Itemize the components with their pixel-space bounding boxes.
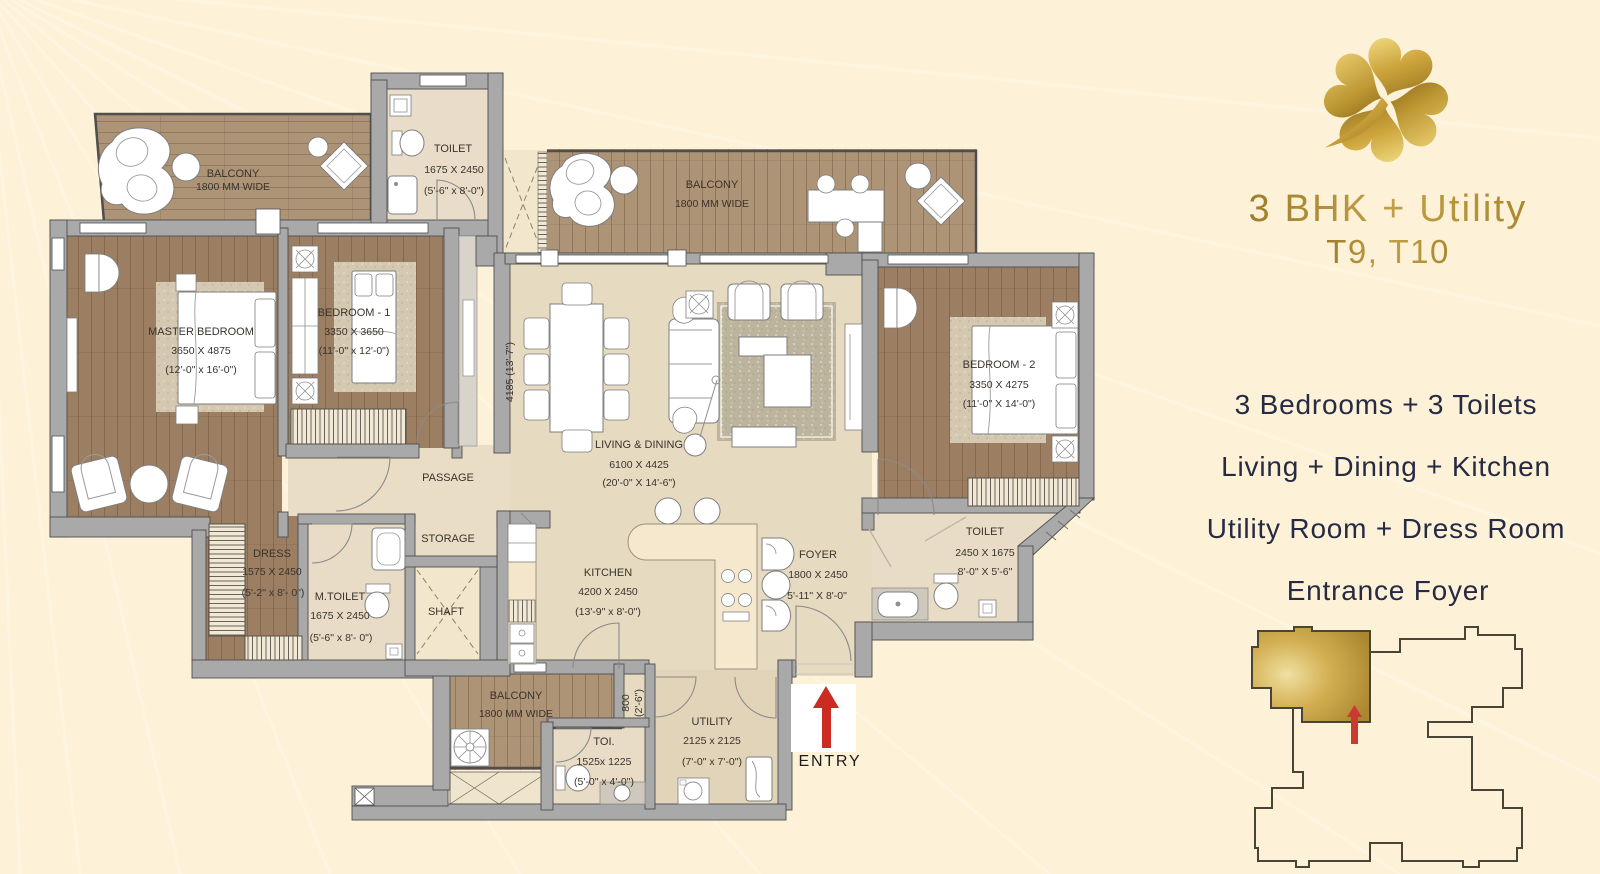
- svg-text:KITCHEN: KITCHEN: [584, 567, 632, 579]
- svg-text:TOILET: TOILET: [966, 526, 1005, 538]
- svg-text:(11'-0" x 12'-0"): (11'-0" x 12'-0"): [319, 345, 390, 357]
- svg-text:3350 X 3650: 3350 X 3650: [324, 326, 384, 338]
- svg-text:(7'-0" x 7'-0"): (7'-0" x 7'-0"): [682, 756, 742, 768]
- svg-text:(11'-0" X 14'-0"): (11'-0" X 14'-0"): [963, 398, 1036, 410]
- svg-text:(2'-6"): (2'-6"): [633, 689, 645, 717]
- svg-text:BALCONY: BALCONY: [686, 179, 739, 191]
- svg-text:(5'-6" x 8'-0"): (5'-6" x 8'-0"): [424, 185, 484, 197]
- svg-text:(12'-0" x 16'-0"): (12'-0" x 16'-0"): [165, 364, 237, 376]
- svg-text:STORAGE: STORAGE: [421, 533, 475, 545]
- svg-text:SHAFT: SHAFT: [428, 606, 464, 618]
- svg-text:3 BHK + Utility: 3 BHK + Utility: [1248, 188, 1527, 230]
- svg-text:BEDROOM - 2: BEDROOM - 2: [963, 359, 1036, 371]
- svg-text:BALCONY: BALCONY: [490, 690, 543, 702]
- svg-text:1675 X 2450: 1675 X 2450: [310, 610, 370, 622]
- svg-text:(5'-2" x 8'- 0"): (5'-2" x 8'- 0"): [242, 587, 305, 599]
- svg-text:6100 X 4425: 6100 X 4425: [609, 459, 669, 471]
- svg-text:(5'-6" x 8'- 0"): (5'-6" x 8'- 0"): [310, 632, 373, 644]
- svg-text:(20'-0" X 14'-6"): (20'-0" X 14'-6"): [602, 477, 675, 489]
- svg-text:1575 X 2450: 1575 X 2450: [242, 566, 302, 578]
- svg-text:TOI.: TOI.: [593, 736, 614, 748]
- svg-text:800: 800: [620, 694, 632, 712]
- svg-text:MASTER BEDROOM: MASTER BEDROOM: [148, 326, 254, 338]
- svg-text:M.TOILET: M.TOILET: [315, 591, 366, 603]
- svg-text:PASSAGE: PASSAGE: [422, 472, 474, 484]
- svg-text:1800 X 2450: 1800 X 2450: [788, 569, 848, 581]
- svg-text:BALCONY: BALCONY: [207, 168, 260, 180]
- svg-text:3650 X 4875: 3650 X 4875: [171, 345, 231, 357]
- svg-text:Utility Room + Dress Room: Utility Room + Dress Room: [1207, 513, 1565, 544]
- svg-text:3350 X 4275: 3350 X 4275: [969, 379, 1029, 391]
- svg-text:8'-0" X 5'-6": 8'-0" X 5'-6": [958, 566, 1013, 578]
- svg-text:5'-11" X 8'-0": 5'-11" X 8'-0": [787, 590, 847, 602]
- svg-text:(13'-9" x 8'-0"): (13'-9" x 8'-0"): [575, 606, 641, 618]
- svg-text:FOYER: FOYER: [799, 549, 837, 561]
- svg-text:1525x 1225: 1525x 1225: [577, 756, 632, 768]
- svg-text:1800 MM WIDE: 1800 MM WIDE: [196, 181, 270, 193]
- svg-text:Living + Dining + Kitchen: Living + Dining + Kitchen: [1221, 451, 1551, 482]
- svg-text:1800 MM WIDE: 1800 MM WIDE: [675, 198, 749, 210]
- svg-text:ENTRY: ENTRY: [799, 753, 862, 770]
- svg-text:3 Bedrooms + 3 Toilets: 3 Bedrooms + 3 Toilets: [1235, 389, 1538, 420]
- svg-text:LIVING & DINING: LIVING & DINING: [595, 439, 683, 451]
- svg-text:4200 X 2450: 4200 X 2450: [578, 586, 638, 598]
- svg-text:DRESS: DRESS: [253, 548, 291, 560]
- svg-text:2125 x 2125: 2125 x 2125: [683, 735, 741, 747]
- svg-text:UTILITY: UTILITY: [692, 716, 734, 728]
- svg-text:1675 X 2450: 1675 X 2450: [424, 164, 484, 176]
- svg-text:T9, T10: T9, T10: [1326, 233, 1450, 270]
- svg-text:(5'-0" x 4'-0"): (5'-0" x 4'-0"): [574, 776, 634, 788]
- svg-text:BEDROOM - 1: BEDROOM - 1: [318, 307, 391, 319]
- svg-text:4185 (13'-7"): 4185 (13'-7"): [504, 342, 516, 402]
- svg-text:Entrance Foyer: Entrance Foyer: [1287, 575, 1490, 606]
- svg-text:1800 MM WIDE: 1800 MM WIDE: [479, 708, 553, 720]
- svg-text:2450 X 1675: 2450 X 1675: [955, 547, 1015, 559]
- svg-text:TOILET: TOILET: [434, 143, 473, 155]
